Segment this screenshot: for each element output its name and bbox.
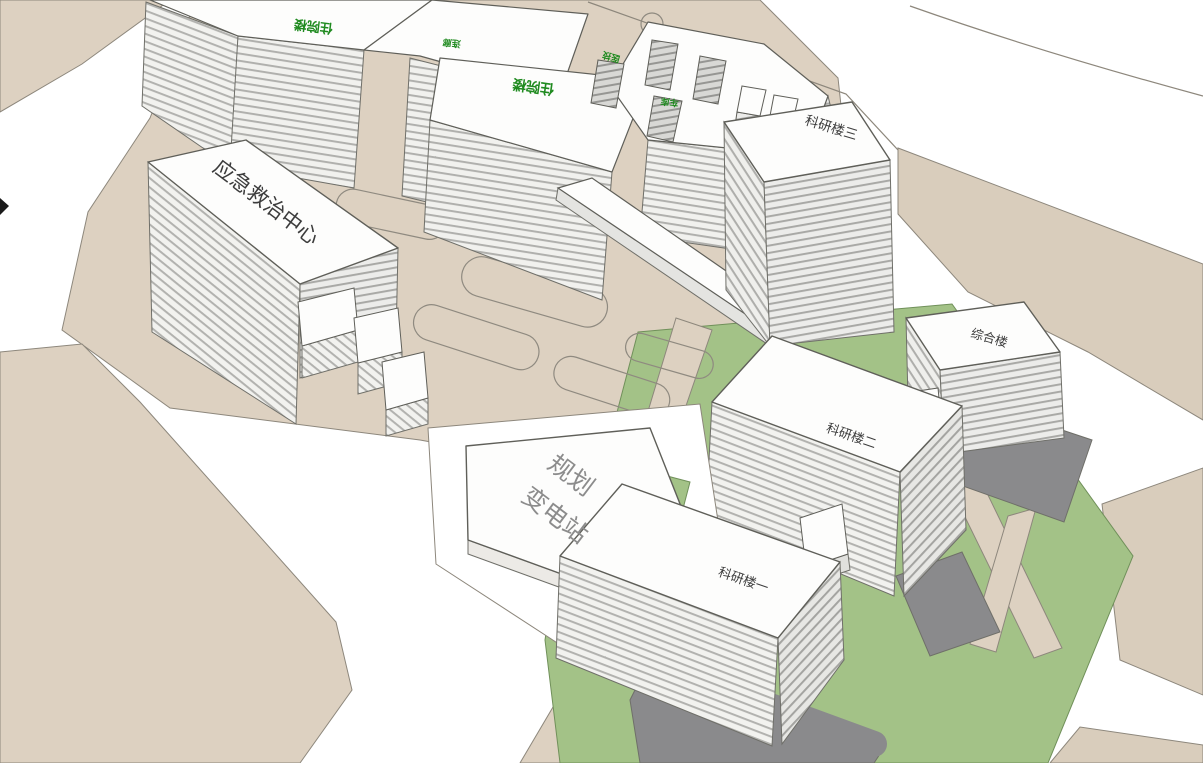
model-viewport[interactable]: 应急救治中心 科研楼三 综合楼 科研楼二 科研楼一 规划 变电站 住院楼 住院楼… (0, 0, 1203, 763)
building-research-tower-3[interactable] (724, 102, 894, 346)
